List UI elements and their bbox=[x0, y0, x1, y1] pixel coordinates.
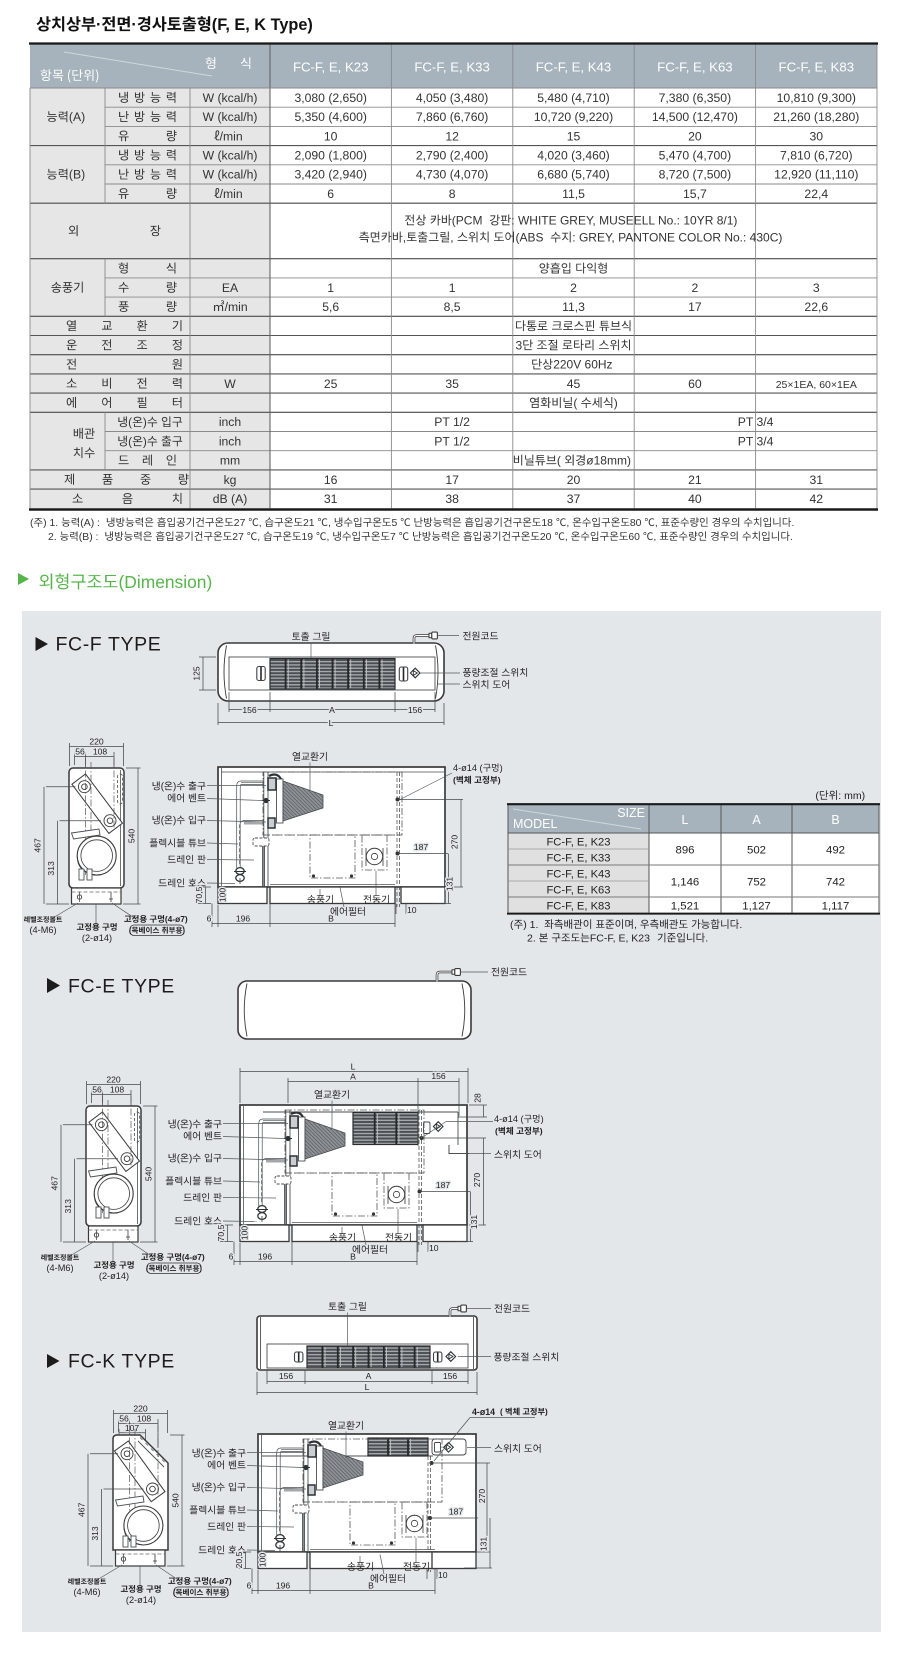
svg-text:,: , bbox=[327, 532, 330, 543]
svg-text:): ) bbox=[498, 775, 501, 785]
svg-text:8,720 (7,500): 8,720 (7,500) bbox=[659, 168, 732, 182]
svg-text:,: , bbox=[634, 919, 637, 931]
svg-text:896: 896 bbox=[675, 845, 694, 857]
svg-text:(: ( bbox=[128, 415, 132, 429]
svg-text:10: 10 bbox=[438, 1570, 448, 1580]
svg-text:502: 502 bbox=[747, 845, 766, 857]
svg-text:108: 108 bbox=[137, 1414, 152, 1424]
svg-text:17: 17 bbox=[445, 473, 459, 487]
svg-text:,: , bbox=[565, 532, 568, 543]
svg-text:20,5: 20,5 bbox=[234, 1551, 244, 1568]
svg-text:W (kcal/h): W (kcal/h) bbox=[203, 168, 258, 182]
svg-text:4,730 (4,070): 4,730 (4,070) bbox=[416, 168, 489, 182]
svg-text:,: , bbox=[653, 532, 656, 543]
svg-text:40: 40 bbox=[688, 492, 702, 506]
svg-text:(: ( bbox=[573, 396, 577, 410]
svg-text:2,090 (1,800): 2,090 (1,800) bbox=[294, 149, 367, 163]
svg-text:540: 540 bbox=[144, 1167, 154, 1182]
svg-text:5: 5 bbox=[392, 518, 398, 529]
svg-text:,: , bbox=[328, 518, 331, 529]
svg-text:10,810 (9,300): 10,810 (9,300) bbox=[777, 91, 856, 105]
svg-text:196: 196 bbox=[276, 1581, 291, 1591]
svg-text:6: 6 bbox=[207, 914, 212, 924]
svg-text:PT 1/2: PT 1/2 bbox=[434, 415, 470, 429]
svg-text:): ) bbox=[213, 1449, 216, 1460]
svg-text:42: 42 bbox=[810, 492, 824, 506]
svg-text:): ) bbox=[173, 816, 176, 827]
svg-text:4,020 (3,460): 4,020 (3,460) bbox=[537, 149, 610, 163]
svg-text:2,790 (2,400): 2,790 (2,400) bbox=[416, 149, 489, 163]
svg-text:3,420 (2,940): 3,420 (2,940) bbox=[294, 168, 367, 182]
svg-text:1,117: 1,117 bbox=[822, 900, 850, 912]
svg-text:,: , bbox=[655, 518, 658, 529]
svg-text:540: 540 bbox=[171, 1493, 181, 1508]
svg-text:7: 7 bbox=[390, 532, 396, 543]
svg-text:kg: kg bbox=[224, 473, 237, 487]
svg-text:1,127: 1,127 bbox=[742, 900, 771, 912]
svg-text:4-ø14 (: 4-ø14 ( bbox=[453, 763, 483, 773]
svg-text:(: ( bbox=[128, 434, 132, 448]
svg-text:6: 6 bbox=[229, 1252, 234, 1262]
svg-text:31: 31 bbox=[324, 492, 338, 506]
svg-text:(: ( bbox=[500, 1408, 503, 1417]
svg-text:156: 156 bbox=[408, 705, 423, 715]
svg-text:27: 27 bbox=[232, 532, 244, 543]
svg-text:FC-F TYPE: FC-F TYPE bbox=[56, 634, 162, 656]
svg-text:31: 31 bbox=[810, 473, 824, 487]
svg-text:467: 467 bbox=[77, 1502, 87, 1517]
svg-text:(: ( bbox=[510, 919, 514, 931]
svg-text:1: 1 bbox=[449, 281, 456, 295]
svg-text:313: 313 bbox=[46, 861, 56, 876]
svg-text:(A): (A) bbox=[69, 110, 85, 124]
svg-text:25×1EA, 60×1EA: 25×1EA, 60×1EA bbox=[776, 379, 857, 391]
svg-text:(: ( bbox=[815, 790, 819, 802]
svg-text:PT 3/4: PT 3/4 bbox=[738, 415, 774, 429]
svg-text:35: 35 bbox=[445, 377, 459, 391]
svg-text:156: 156 bbox=[443, 1371, 458, 1381]
svg-text:FC-F, E, K33: FC-F, E, K33 bbox=[546, 852, 610, 864]
svg-text:10: 10 bbox=[324, 129, 338, 143]
svg-text:FC-F, E, K43: FC-F, E, K43 bbox=[546, 868, 610, 880]
svg-text:A: A bbox=[350, 1072, 356, 1082]
svg-text:30: 30 bbox=[810, 129, 824, 143]
svg-text:7,860 (6,760): 7,860 (6,760) bbox=[416, 110, 489, 124]
svg-text:56: 56 bbox=[119, 1414, 129, 1424]
svg-text:/min: /min bbox=[220, 129, 243, 143]
svg-text:19: 19 bbox=[302, 532, 314, 543]
svg-text:21: 21 bbox=[688, 473, 702, 487]
svg-text:) 1.: ) 1. bbox=[43, 518, 58, 529]
svg-text:100: 100 bbox=[258, 1553, 268, 1568]
svg-text:4-ø14: 4-ø14 bbox=[472, 1407, 495, 1417]
svg-text:313: 313 bbox=[90, 1526, 100, 1541]
svg-text:A: A bbox=[329, 705, 335, 715]
svg-text:A: A bbox=[366, 1371, 372, 1381]
svg-text:,: , bbox=[566, 518, 569, 529]
svg-text:3: 3 bbox=[516, 338, 523, 352]
svg-text:FC-F, E, K83: FC-F, E, K83 bbox=[779, 60, 854, 75]
svg-text:56: 56 bbox=[92, 1085, 102, 1095]
svg-text:270: 270 bbox=[477, 1489, 487, 1504]
svg-text:108: 108 bbox=[93, 747, 108, 757]
svg-text:L: L bbox=[682, 813, 689, 827]
svg-text:FC-F, E, K43: FC-F, E, K43 bbox=[536, 60, 611, 75]
svg-text:131: 131 bbox=[469, 1215, 479, 1230]
svg-text:196: 196 bbox=[236, 914, 251, 924]
svg-text:5,350 (4,600): 5,350 (4,600) bbox=[294, 110, 367, 124]
svg-text:187: 187 bbox=[436, 1180, 451, 1190]
svg-text:ø18mm): ø18mm) bbox=[586, 454, 631, 468]
svg-text:B: B bbox=[368, 1581, 374, 1591]
svg-text:B: B bbox=[328, 914, 334, 924]
svg-text:SIZE: SIZE bbox=[617, 806, 645, 820]
svg-text:EA: EA bbox=[222, 281, 239, 295]
svg-text:70,5: 70,5 bbox=[194, 886, 204, 903]
svg-text:·: · bbox=[96, 16, 101, 34]
svg-text:6: 6 bbox=[247, 1581, 252, 1591]
svg-text:A: A bbox=[752, 813, 761, 827]
svg-text:37: 37 bbox=[567, 492, 581, 506]
svg-text:L: L bbox=[365, 1382, 370, 1392]
svg-text:W (kcal/h): W (kcal/h) bbox=[203, 110, 258, 124]
svg-text:inch: inch bbox=[219, 415, 241, 429]
svg-text:): ) bbox=[143, 434, 147, 448]
svg-text:(4-ø7): (4-ø7) bbox=[182, 1252, 205, 1262]
svg-text:220: 220 bbox=[106, 1075, 121, 1085]
svg-text:mm: mm bbox=[220, 454, 240, 468]
svg-text:FC-E TYPE: FC-E TYPE bbox=[68, 976, 175, 998]
svg-text:(4-M6): (4-M6) bbox=[47, 1263, 74, 1273]
svg-text:MODEL: MODEL bbox=[513, 817, 558, 831]
svg-text:131: 131 bbox=[445, 877, 455, 892]
svg-text:10: 10 bbox=[407, 905, 417, 915]
svg-text:(: ( bbox=[453, 775, 456, 785]
svg-text:21: 21 bbox=[303, 518, 315, 529]
svg-text:.: . bbox=[792, 518, 795, 529]
svg-text:38: 38 bbox=[445, 492, 459, 506]
svg-text:W: W bbox=[224, 377, 236, 391]
svg-text:3,080 (2,650): 3,080 (2,650) bbox=[294, 91, 367, 105]
svg-text:467: 467 bbox=[50, 1176, 60, 1191]
svg-text:): ) bbox=[173, 782, 176, 793]
svg-text:492: 492 bbox=[826, 845, 845, 857]
svg-text:,: , bbox=[450, 231, 453, 245]
svg-text:100: 100 bbox=[240, 1226, 250, 1241]
svg-text:(PCM: (PCM bbox=[452, 214, 483, 228]
svg-text:107: 107 bbox=[125, 1423, 140, 1433]
svg-text:15,7: 15,7 bbox=[683, 187, 707, 201]
svg-text:12,920 (11,110): 12,920 (11,110) bbox=[774, 168, 858, 182]
svg-text:752: 752 bbox=[747, 877, 766, 889]
svg-text:(2-ø14): (2-ø14) bbox=[99, 1271, 129, 1281]
svg-text:(F, E, K Type): (F, E, K Type) bbox=[212, 16, 313, 34]
svg-text:196: 196 bbox=[258, 1252, 273, 1262]
svg-text:(4-ø7): (4-ø7) bbox=[165, 914, 188, 924]
svg-text:16: 16 bbox=[324, 473, 338, 487]
svg-text:187: 187 bbox=[449, 1507, 464, 1517]
svg-text:270: 270 bbox=[450, 835, 460, 850]
svg-text:20: 20 bbox=[688, 129, 702, 143]
svg-text:PT 1/2: PT 1/2 bbox=[434, 434, 470, 448]
svg-text:7,380 (6,350): 7,380 (6,350) bbox=[659, 91, 732, 105]
svg-text:B: B bbox=[831, 813, 839, 827]
svg-text:(B) :: (B) : bbox=[79, 532, 99, 543]
svg-text:8: 8 bbox=[449, 187, 456, 201]
svg-text:6: 6 bbox=[327, 187, 334, 201]
svg-text:17: 17 bbox=[688, 300, 702, 314]
svg-text:(: ( bbox=[557, 454, 561, 468]
svg-text:220V 60Hz: 220V 60Hz bbox=[553, 358, 612, 372]
svg-text:60: 60 bbox=[628, 532, 640, 543]
svg-text:(: ( bbox=[30, 518, 34, 529]
svg-text:2.: 2. bbox=[527, 933, 536, 945]
svg-text:): ) bbox=[614, 396, 618, 410]
svg-text:10: 10 bbox=[429, 1243, 439, 1253]
svg-text:: WHITE GREY, MUSEELL No.: 10Y: : WHITE GREY, MUSEELL No.: 10YR 8/1) bbox=[511, 214, 737, 228]
svg-text:4-ø14 (: 4-ø14 ( bbox=[494, 1114, 524, 1124]
svg-text:156: 156 bbox=[242, 705, 257, 715]
svg-text:60: 60 bbox=[688, 377, 702, 391]
svg-text:) 1.: ) 1. bbox=[523, 919, 538, 931]
svg-text:25: 25 bbox=[324, 377, 338, 391]
svg-text:(2-ø14): (2-ø14) bbox=[82, 933, 112, 943]
svg-text:100: 100 bbox=[218, 888, 228, 903]
svg-text:11,3: 11,3 bbox=[562, 300, 585, 314]
svg-text:22,4: 22,4 bbox=[804, 187, 828, 201]
svg-text:3: 3 bbox=[813, 281, 820, 295]
svg-text:5,470 (4,700): 5,470 (4,700) bbox=[659, 149, 732, 163]
svg-text:: mm): : mm) bbox=[838, 790, 865, 802]
svg-text:): ) bbox=[189, 1120, 192, 1131]
svg-text:L: L bbox=[329, 718, 334, 728]
svg-text:): ) bbox=[541, 1114, 544, 1124]
svg-text:FC-F, E, K23: FC-F, E, K23 bbox=[293, 60, 368, 75]
svg-text:W (kcal/h): W (kcal/h) bbox=[203, 91, 258, 105]
svg-text:125: 125 bbox=[192, 666, 202, 681]
svg-text:108: 108 bbox=[110, 1085, 125, 1095]
svg-text:(4-M6): (4-M6) bbox=[74, 1587, 101, 1597]
svg-text:): ) bbox=[500, 763, 503, 773]
svg-text:,: , bbox=[259, 518, 262, 529]
svg-text:1,521: 1,521 bbox=[671, 900, 700, 912]
svg-text:45: 45 bbox=[567, 377, 581, 391]
svg-text:(B): (B) bbox=[69, 168, 85, 182]
svg-text:1: 1 bbox=[327, 281, 334, 295]
svg-text:/min: /min bbox=[225, 300, 248, 314]
svg-text:467: 467 bbox=[33, 838, 43, 853]
svg-text:PT 3/4: PT 3/4 bbox=[738, 434, 774, 448]
svg-text:8,5: 8,5 bbox=[444, 300, 461, 314]
svg-text:.: . bbox=[790, 532, 793, 543]
svg-text:56: 56 bbox=[75, 747, 85, 757]
svg-text:2.: 2. bbox=[48, 532, 57, 543]
svg-text:dB (A): dB (A) bbox=[213, 492, 248, 506]
svg-text:: GREY, PANTONE COLOR No.: 430: : GREY, PANTONE COLOR No.: 430C) bbox=[572, 231, 782, 245]
svg-text:187: 187 bbox=[414, 842, 429, 852]
svg-text:131: 131 bbox=[479, 1537, 489, 1552]
svg-text:220: 220 bbox=[89, 737, 104, 747]
svg-text:6,680 (5,740): 6,680 (5,740) bbox=[537, 168, 610, 182]
svg-text:2: 2 bbox=[570, 281, 577, 295]
svg-text:FC-K TYPE: FC-K TYPE bbox=[68, 1351, 175, 1373]
svg-text:2: 2 bbox=[692, 281, 699, 295]
svg-text:540: 540 bbox=[127, 829, 137, 844]
svg-text:FC-F, E, K23: FC-F, E, K23 bbox=[590, 933, 650, 945]
svg-text:156: 156 bbox=[279, 1371, 294, 1381]
svg-text:): ) bbox=[540, 1126, 543, 1136]
svg-text:80: 80 bbox=[630, 518, 642, 529]
svg-text:FC-F, E, K33: FC-F, E, K33 bbox=[414, 60, 489, 75]
svg-text:FC-F, E, K23: FC-F, E, K23 bbox=[546, 836, 610, 848]
svg-text:10,720 (9,220): 10,720 (9,220) bbox=[534, 110, 613, 124]
svg-text:5,480 (4,710): 5,480 (4,710) bbox=[537, 91, 610, 105]
svg-text:20: 20 bbox=[540, 532, 552, 543]
svg-text:18: 18 bbox=[541, 518, 553, 529]
svg-text:L: L bbox=[351, 1062, 356, 1072]
svg-text:15: 15 bbox=[567, 129, 581, 143]
svg-text:): ) bbox=[189, 1154, 192, 1165]
svg-text:1,146: 1,146 bbox=[671, 877, 700, 889]
svg-text:12: 12 bbox=[445, 129, 459, 143]
svg-text:27: 27 bbox=[234, 518, 246, 529]
svg-text:21,260 (18,280): 21,260 (18,280) bbox=[773, 110, 859, 124]
svg-text:313: 313 bbox=[63, 1199, 73, 1214]
svg-text:20: 20 bbox=[567, 473, 581, 487]
svg-text:70,5: 70,5 bbox=[216, 1224, 226, 1241]
svg-text:(ABS: (ABS bbox=[516, 231, 544, 245]
svg-text:inch: inch bbox=[219, 434, 241, 448]
svg-text:156: 156 bbox=[431, 1071, 446, 1081]
svg-text:(4-ø7): (4-ø7) bbox=[209, 1576, 232, 1586]
svg-text:(A) :: (A) : bbox=[80, 518, 100, 529]
svg-text:B: B bbox=[350, 1252, 356, 1262]
svg-text:28: 28 bbox=[473, 1093, 483, 1103]
svg-text:.: . bbox=[739, 919, 742, 931]
svg-text:FC-F, E, K63: FC-F, E, K63 bbox=[657, 60, 732, 75]
svg-text:W (kcal/h): W (kcal/h) bbox=[203, 149, 258, 163]
svg-text:): ) bbox=[545, 1408, 548, 1417]
svg-text:742: 742 bbox=[826, 877, 845, 889]
svg-text:/min: /min bbox=[220, 187, 243, 201]
svg-text:): ) bbox=[213, 1483, 216, 1494]
svg-text:.: . bbox=[705, 933, 708, 945]
svg-text:220: 220 bbox=[133, 1404, 148, 1414]
svg-text:(: ( bbox=[495, 1126, 498, 1136]
svg-text:FC-F, E, K63: FC-F, E, K63 bbox=[546, 884, 610, 896]
svg-text:,: , bbox=[257, 532, 260, 543]
svg-text:·: · bbox=[131, 16, 136, 34]
svg-text:): ) bbox=[143, 415, 147, 429]
svg-text:11,5: 11,5 bbox=[562, 187, 585, 201]
svg-text:270: 270 bbox=[472, 1173, 482, 1188]
svg-text:(2-ø14): (2-ø14) bbox=[126, 1595, 156, 1605]
svg-text:(Dimension): (Dimension) bbox=[119, 572, 213, 592]
svg-text:22,6: 22,6 bbox=[804, 300, 828, 314]
svg-text:7,810 (6,720): 7,810 (6,720) bbox=[780, 149, 853, 163]
svg-text:5,6: 5,6 bbox=[322, 300, 339, 314]
svg-text:,: , bbox=[403, 231, 406, 245]
svg-text:FC-F, E, K83: FC-F, E, K83 bbox=[546, 900, 610, 912]
svg-text:14,500 (12,470): 14,500 (12,470) bbox=[652, 110, 738, 124]
svg-text:4,050 (3,480): 4,050 (3,480) bbox=[416, 91, 489, 105]
svg-text:(4-M6): (4-M6) bbox=[30, 925, 57, 935]
